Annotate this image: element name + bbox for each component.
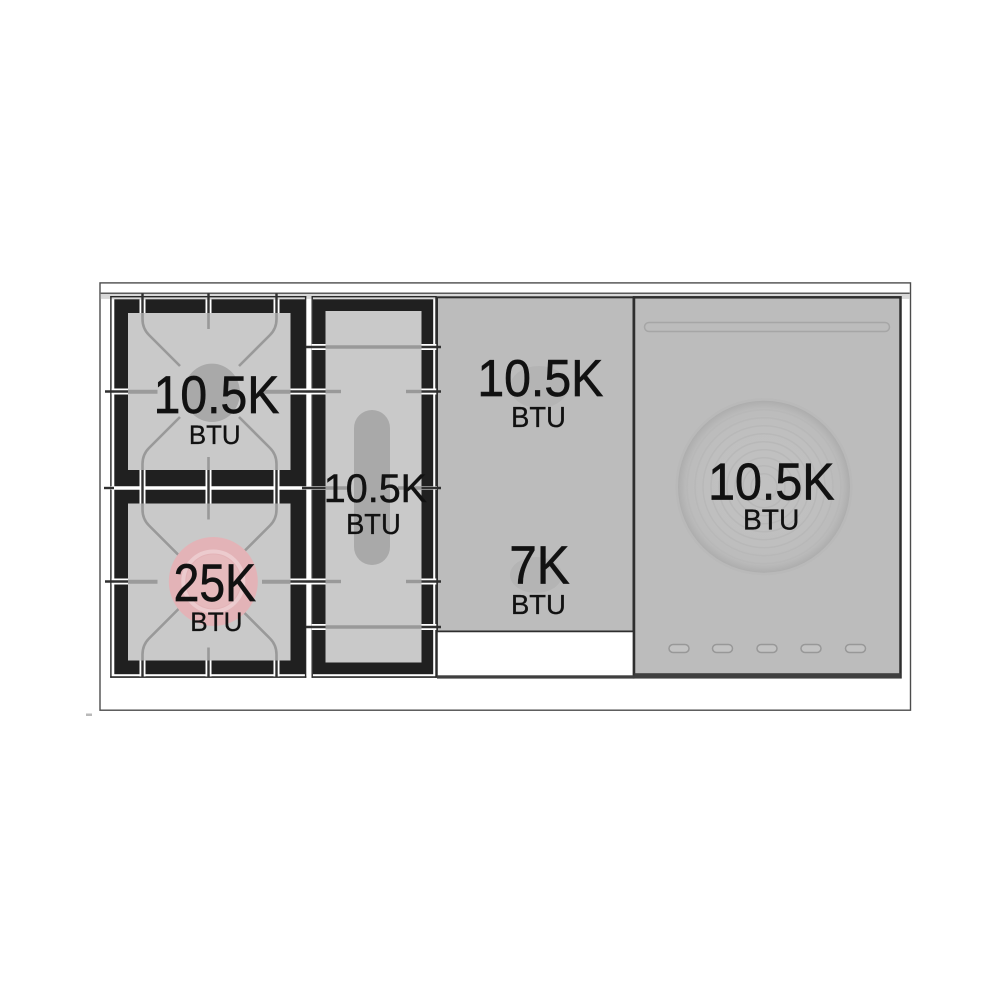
svg-text:10.5K: 10.5K <box>154 365 280 424</box>
svg-text:25K: 25K <box>174 555 256 613</box>
svg-text:BTU: BTU <box>190 607 242 638</box>
svg-text:BTU: BTU <box>511 589 566 620</box>
svg-text:BTU: BTU <box>743 504 799 536</box>
svg-text:7K: 7K <box>509 534 569 594</box>
svg-text:10.5K: 10.5K <box>708 453 834 511</box>
svg-text:BTU: BTU <box>189 419 241 450</box>
svg-text:10.5K: 10.5K <box>324 467 427 511</box>
svg-text:BTU: BTU <box>346 508 401 540</box>
svg-text:BTU: BTU <box>511 402 566 434</box>
svg-text:10.5K: 10.5K <box>477 348 603 407</box>
